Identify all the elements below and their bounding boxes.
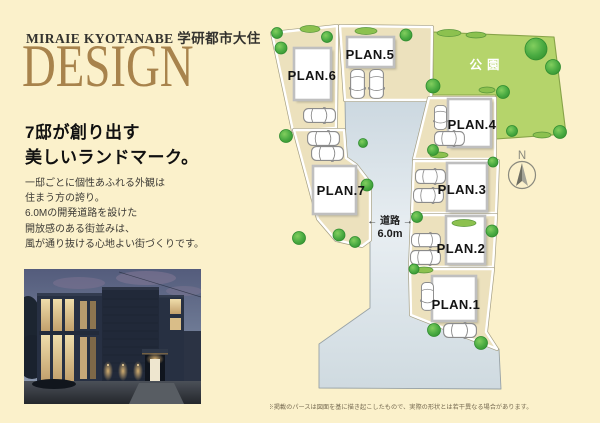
car-icon <box>444 322 477 339</box>
road-label: ← 道路 → <box>367 214 413 227</box>
compass-needle-left <box>516 163 522 186</box>
site-plan: 公園 <box>270 0 600 423</box>
page-title: DESIGN <box>22 36 194 96</box>
body-line: 住まう方の誇り。 <box>25 191 204 206</box>
entrance-door <box>150 359 160 383</box>
car-icon <box>312 145 344 162</box>
car-icon <box>349 70 366 99</box>
flyer-page: MIRAIE KYOTANABE 学研都市大住 DESIGN 7邸が創り出す 美… <box>0 0 600 423</box>
catch-copy: 7邸が創り出す 美しいランドマーク。 <box>25 121 199 170</box>
catch-copy-line2: 美しいランドマーク。 <box>25 146 199 171</box>
lot-label-plan-5: PLAN.5 <box>346 47 395 62</box>
body-copy: 一邸ごとに個性あふれる外観は 住まう方の誇り。 6.0Mの開発道路を設けた 開放… <box>25 176 204 252</box>
uplights <box>103 361 143 381</box>
car-icon <box>368 70 385 99</box>
house <box>37 287 184 383</box>
body-line: 風が通り抜ける心地よい街づくりです。 <box>25 237 204 252</box>
shrub-silhouette <box>32 379 76 389</box>
car-icon <box>433 105 448 129</box>
lot-label-plan-4: PLAN.4 <box>448 117 497 132</box>
body-line: 6.0Mの開発道路を設けた <box>25 206 204 221</box>
lot-label-plan-2: PLAN.2 <box>437 241 486 256</box>
car-icon <box>304 107 336 124</box>
park-label: 公園 <box>469 58 504 72</box>
body-line: 一邸ごとに個性あふれる外観は <box>25 176 204 191</box>
lot-label-plan-1: PLAN.1 <box>432 297 481 312</box>
compass-needle-right <box>522 163 528 186</box>
entrance <box>142 349 168 383</box>
north-compass: N <box>509 150 536 189</box>
compass-n-label: N <box>518 150 526 162</box>
car-icon <box>435 130 465 147</box>
lot-label-plan-6: PLAN.6 <box>288 68 337 83</box>
body-line: 開放感のある街並みは、 <box>25 222 204 237</box>
disclaimer-note: ※掲載のパースは図面を基に描き起こしたもので、実際の形状とは若干異なる場合があり… <box>270 403 532 411</box>
road-width-label: 6.0m <box>377 228 402 240</box>
catch-copy-line1: 7邸が創り出す <box>25 121 199 146</box>
house-photo <box>24 269 201 404</box>
lot-label-plan-7: PLAN.7 <box>317 183 366 198</box>
car-icon <box>308 130 340 147</box>
lot-label-plan-3: PLAN.3 <box>438 182 487 197</box>
neighbor-house <box>182 331 201 381</box>
